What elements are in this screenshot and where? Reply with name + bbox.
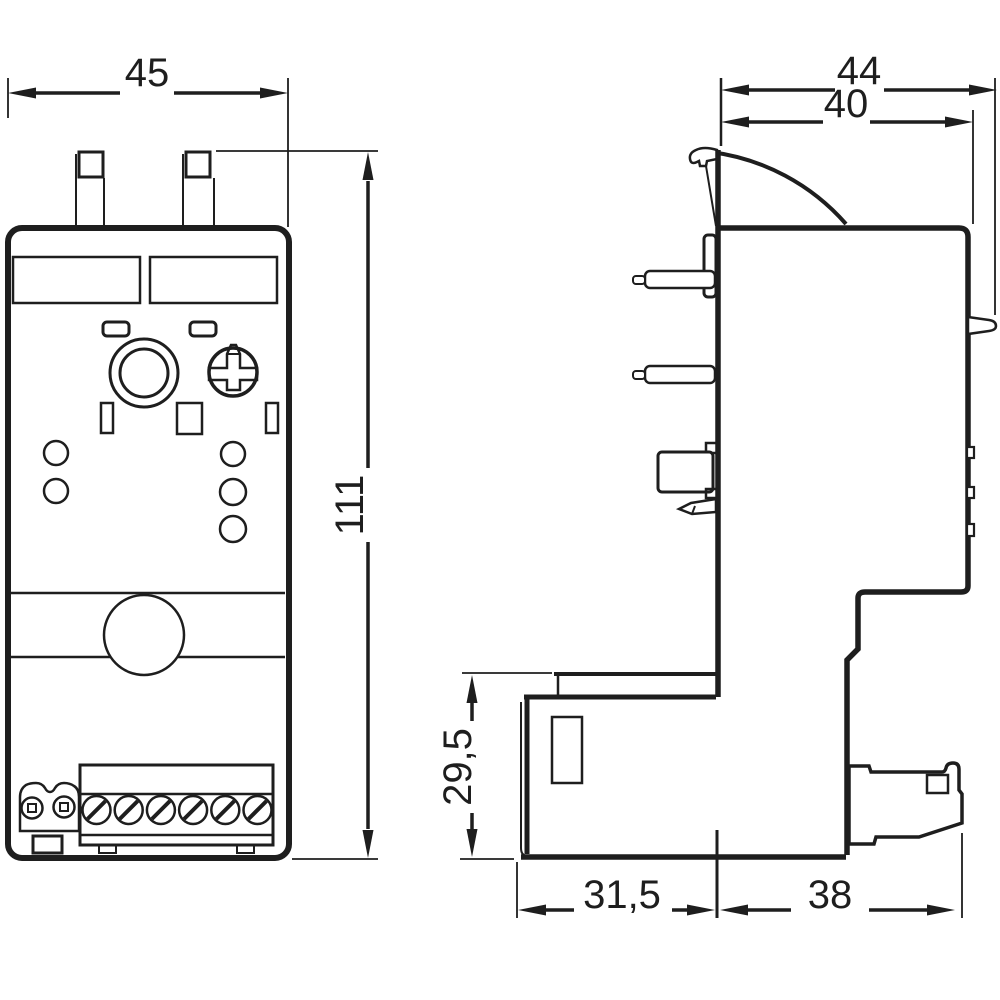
din-rail-clip — [849, 763, 962, 844]
side-body-outline — [521, 150, 968, 857]
rear-pin — [968, 317, 996, 334]
connector-block — [658, 452, 713, 492]
lever-arm — [706, 166, 716, 226]
test-button — [104, 595, 184, 675]
ct-window — [552, 717, 582, 783]
plug-in-pins — [633, 235, 717, 514]
lever-swing-arc — [711, 152, 846, 224]
terminal-block — [80, 765, 273, 853]
technical-drawing-canvas — [0, 0, 1000, 1000]
top-terminal-tabs — [76, 152, 214, 230]
dim-label-rail-depth: 38 — [808, 875, 853, 915]
latch-hook — [679, 499, 716, 514]
side-view — [521, 148, 996, 857]
dim-label-depth-body: 40 — [824, 84, 869, 124]
dimension-drawing: 45 111 44 40 29,5 31,5 38 — [0, 0, 1000, 1000]
dim-label-front-width: 45 — [125, 53, 170, 93]
front-view — [8, 152, 289, 858]
bottom-left-tab — [33, 836, 62, 853]
dim-label-lower-height: 29,5 — [438, 728, 478, 806]
dim-label-front-height: 111 — [330, 475, 370, 536]
release-lever-hook — [690, 148, 717, 166]
dim-label-lower-depth: 31,5 — [583, 875, 661, 915]
